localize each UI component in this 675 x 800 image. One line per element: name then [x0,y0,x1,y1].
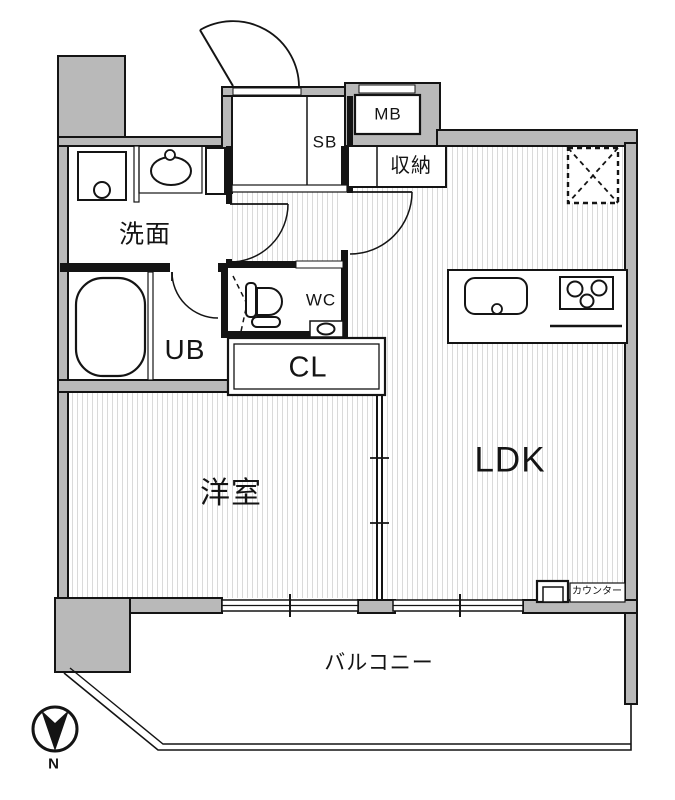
label-shoe-box: SB [313,134,338,151]
label-closet: CL [288,354,327,383]
balcony-outline [64,668,631,750]
label-western-room: 洋室 [200,479,262,509]
unit-bath-fixtures [76,272,153,380]
compass [33,707,77,751]
label-balcony: バルコニー [324,653,434,674]
bathtub [76,278,145,376]
entrance-door [200,30,233,86]
kitchen-counter [448,270,627,343]
cabinet [206,148,225,194]
toilet-tank [246,283,256,317]
refrigerator-space [568,148,618,203]
label-storage: 収納 [390,156,432,176]
kitchen-faucet [492,304,502,314]
toilet-bowl [257,288,282,315]
label-meter-box: MB [374,106,402,123]
label-washroom: 洗面 [119,223,171,248]
floorplan: 洗面 UB WC CL SB MB 収納 LDK 洋室 バルコニー カウンター … [0,0,675,800]
label-compass-north: N [48,757,60,772]
label-unit-bath: UB [165,336,206,364]
label-ldk: LDK [474,443,545,478]
vanity-sink [151,157,191,185]
folding-door [233,276,247,336]
label-toilet: WC [306,292,336,309]
floorplan-drawing [0,0,675,800]
washroom-fixtures [78,146,225,202]
label-counter: カウンター [572,587,622,597]
